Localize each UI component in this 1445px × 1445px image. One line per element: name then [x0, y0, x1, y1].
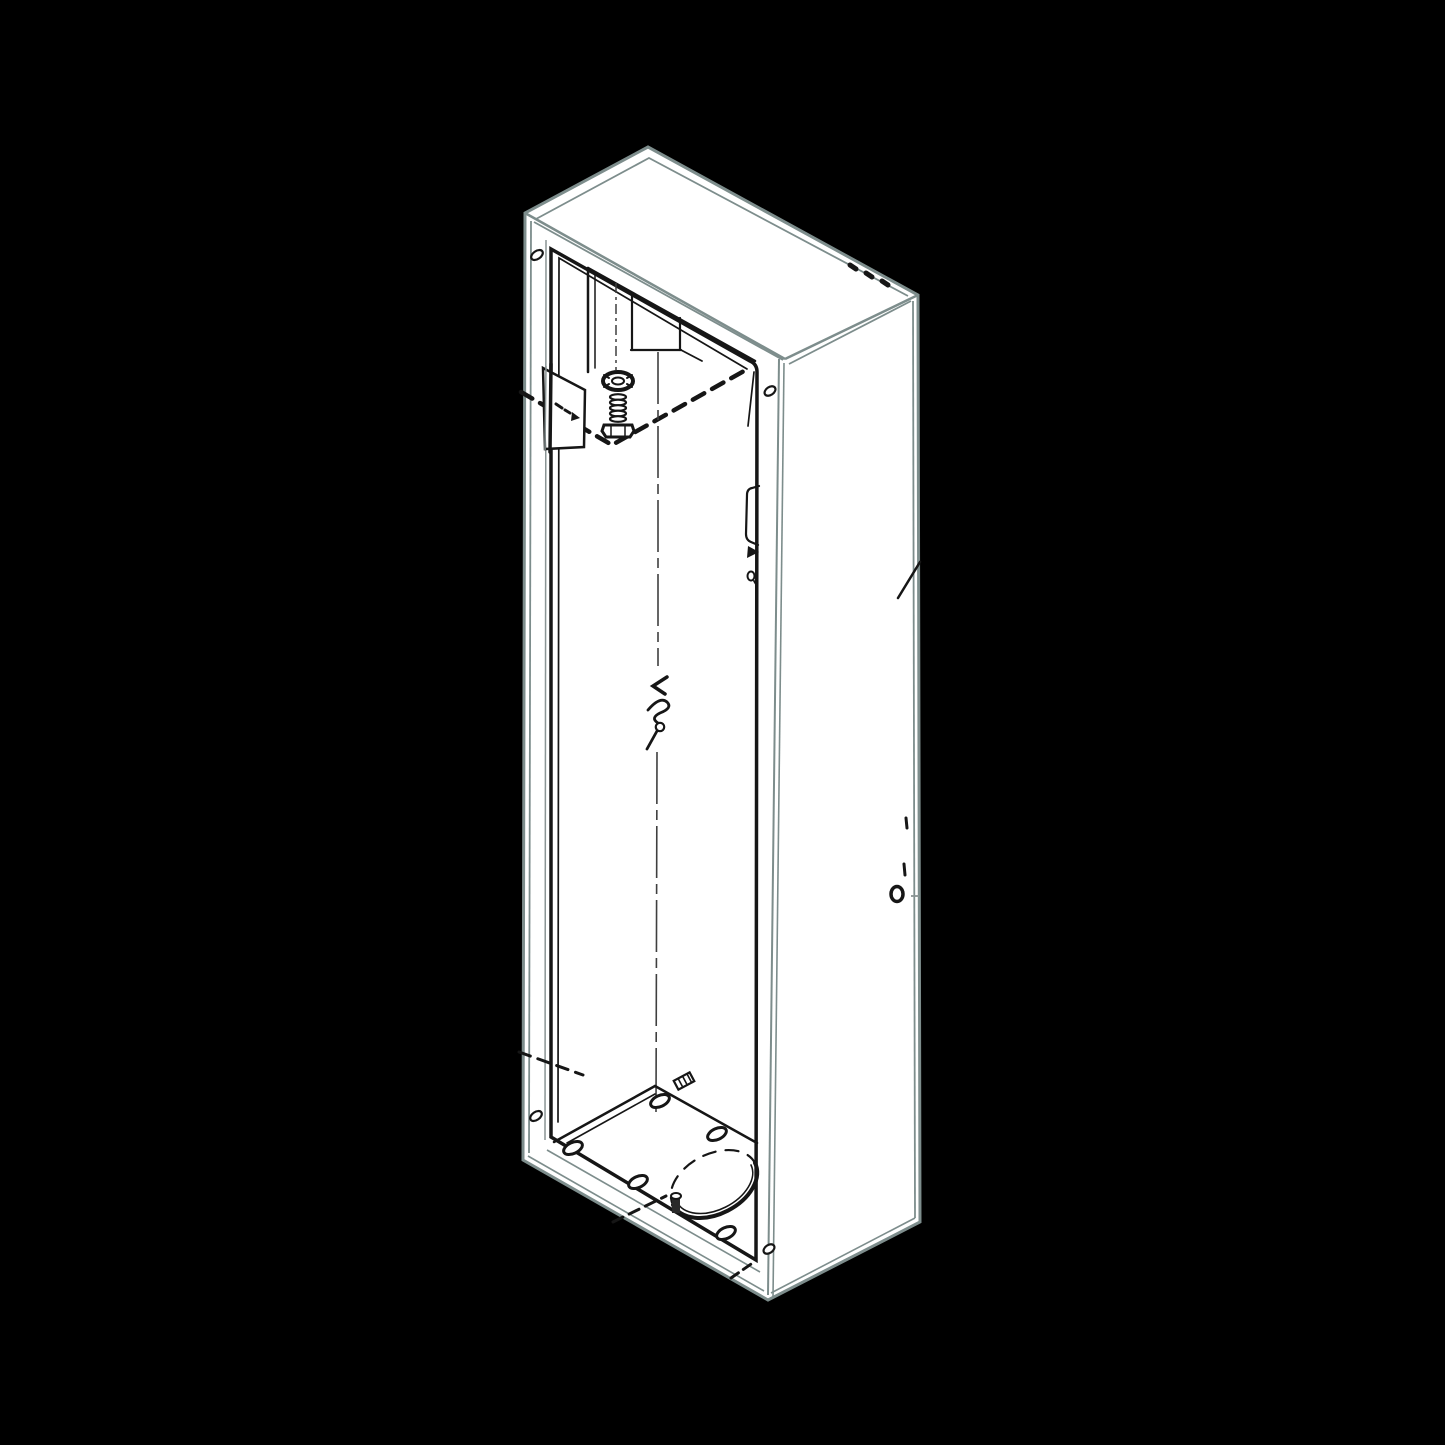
edge-tick-upper — [906, 818, 907, 828]
screw-dot — [882, 281, 888, 285]
edge-tick-lower — [904, 864, 905, 875]
screw-dot — [850, 265, 856, 269]
enclosure-drawing — [0, 0, 1445, 1445]
flange-over-plate-gray — [545, 366, 546, 450]
flange-over-plate-black — [550, 364, 551, 452]
stud-vertical-head — [671, 1193, 681, 1199]
washer-inner — [612, 378, 624, 385]
clip-mark — [748, 572, 755, 581]
bolt-head — [602, 425, 634, 437]
spring-coil — [610, 416, 626, 422]
screw-dot — [866, 273, 872, 277]
